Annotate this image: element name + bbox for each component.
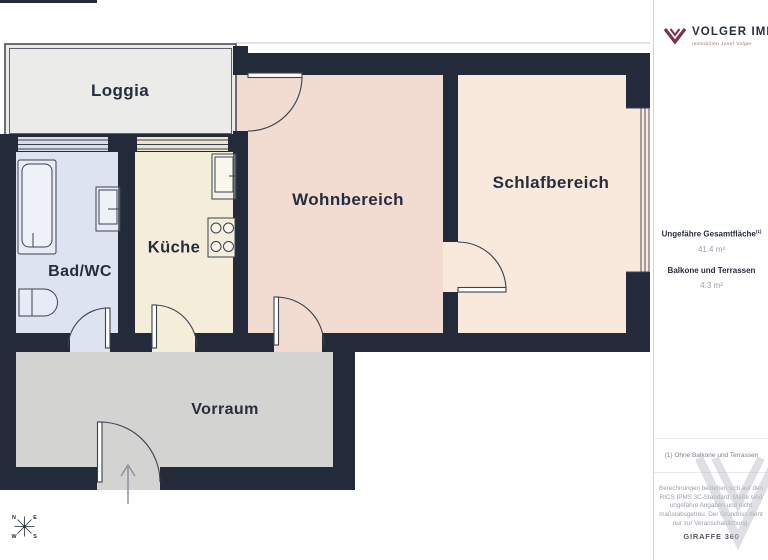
room-vorraum-floor xyxy=(14,350,335,469)
stove-icon xyxy=(208,218,235,257)
compass-w: W xyxy=(11,534,17,540)
brand-tagline: Immobilien Josef Volger xyxy=(692,41,768,46)
room-label-wohnbereich: Wohnbereich xyxy=(292,190,404,210)
kitchen-sink-icon xyxy=(212,154,236,199)
room-label-loggia: Loggia xyxy=(91,81,149,101)
compass-e: E xyxy=(33,515,37,521)
washbasin-icon xyxy=(96,187,120,231)
compass-n: N xyxy=(12,515,16,521)
brand-name: VOLGER IMMO xyxy=(692,26,768,38)
room-label-kueche: Küche xyxy=(148,239,200,258)
compass-s: S xyxy=(33,534,37,540)
balcony-area-value: 4.3 m² xyxy=(654,281,768,290)
divider xyxy=(654,438,768,439)
room-label-bad-wc: Bad/WC xyxy=(48,263,112,281)
area-summary: Ungefähre Gesamtfläche(1) 41.4 m² Balkon… xyxy=(654,229,768,290)
room-label-schlafbereich: Schlafbereich xyxy=(493,173,610,193)
volger-v-icon xyxy=(663,26,687,48)
brand-watermark-icon xyxy=(696,452,768,560)
balcony-area-label: Balkone und Terrassen xyxy=(654,266,768,275)
compass-rose: N E W S xyxy=(11,515,37,540)
window-bad-wc xyxy=(18,137,108,151)
toilet-icon xyxy=(19,289,58,316)
floorplan-page: N E W S Loggia Bad/WC Küche Wohnbereich … xyxy=(0,0,768,560)
total-area-label: Ungefähre Gesamtfläche(1) xyxy=(654,229,768,239)
total-area-value: 41.4 m² xyxy=(654,245,768,254)
window-schlafbereich xyxy=(626,108,649,272)
info-sidebar: VOLGER IMMO Immobilien Josef Volger Unge… xyxy=(653,0,768,560)
footnote-marker: (1) xyxy=(756,229,762,234)
room-label-vorraum: Vorraum xyxy=(191,401,258,419)
brand-logo: VOLGER IMMO Immobilien Josef Volger xyxy=(663,26,768,48)
room-schlafbereich-floor xyxy=(456,71,630,337)
bathtub-icon xyxy=(18,160,56,254)
window-kueche xyxy=(137,137,228,151)
